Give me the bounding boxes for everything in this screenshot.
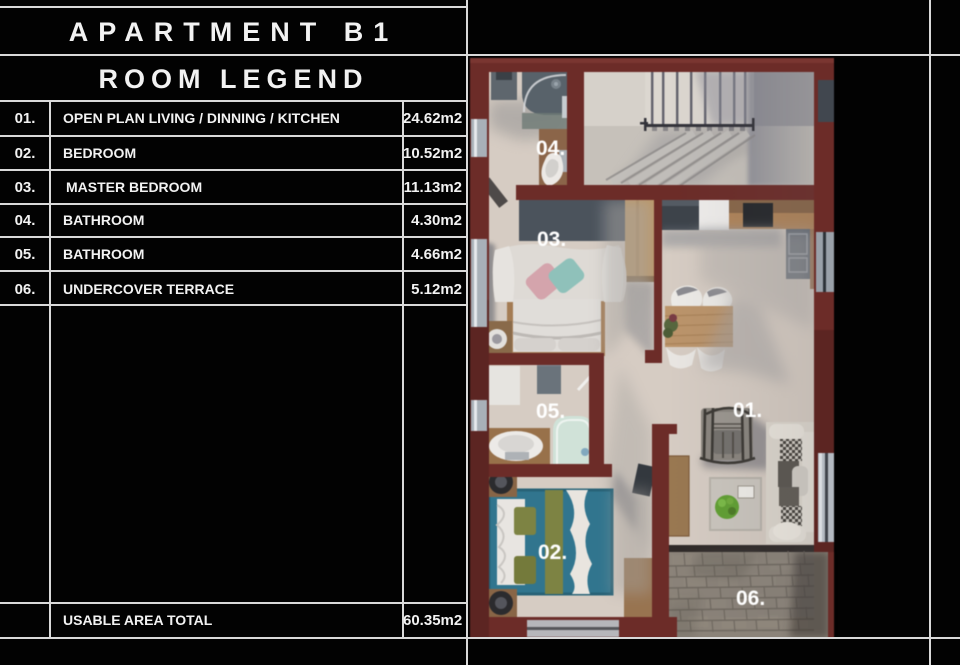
svg-text:01.: 01. bbox=[733, 399, 762, 422]
svg-text:06.: 06. bbox=[736, 587, 765, 610]
svg-text:05.: 05. bbox=[536, 400, 565, 423]
svg-text:03.: 03. bbox=[537, 228, 566, 251]
svg-text:04.: 04. bbox=[536, 137, 565, 160]
svg-text:02.: 02. bbox=[538, 541, 567, 564]
